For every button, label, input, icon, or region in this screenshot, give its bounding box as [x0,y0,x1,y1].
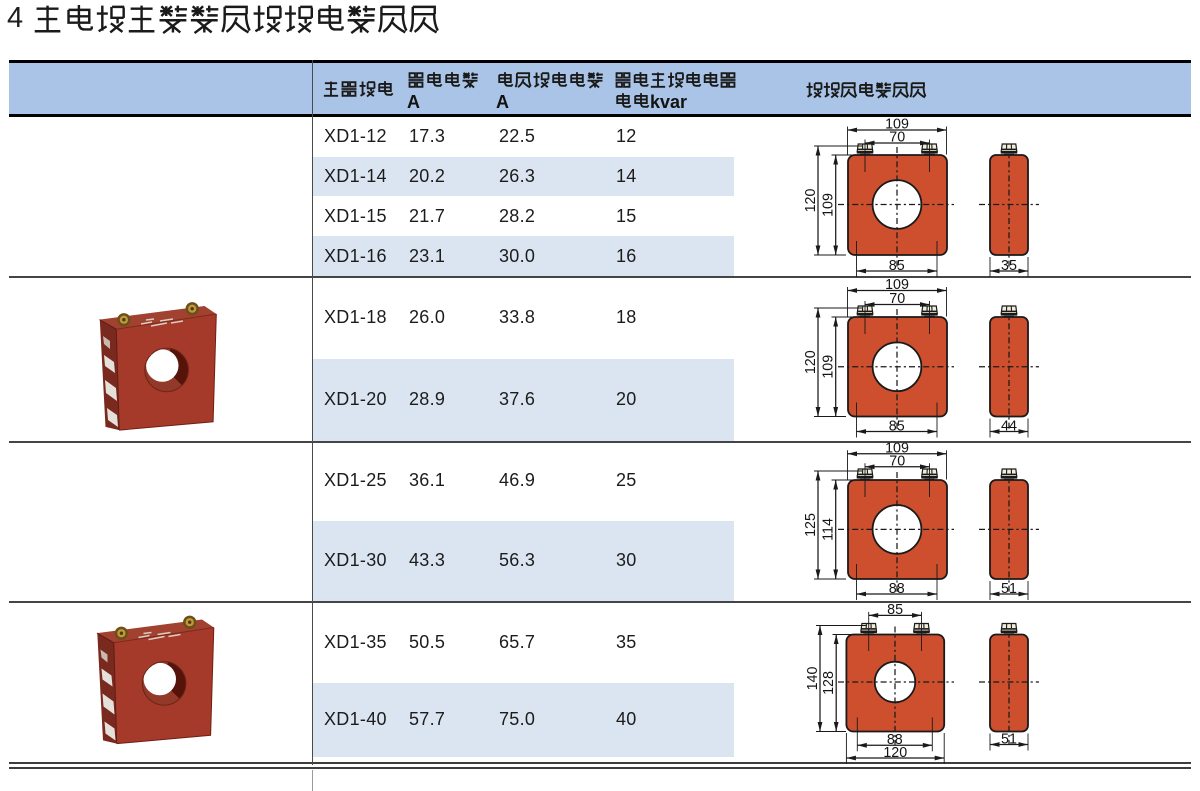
svg-text:70: 70 [889,291,905,307]
svg-text:51: 51 [1001,731,1017,747]
svg-text:85: 85 [889,258,905,274]
svg-text:120: 120 [803,350,819,374]
svg-text:128: 128 [821,671,837,695]
svg-text:70: 70 [889,130,905,146]
svg-text:70: 70 [889,453,905,469]
svg-text:140: 140 [805,667,821,691]
svg-text:88: 88 [889,581,905,597]
svg-text:109: 109 [821,355,837,379]
svg-text:35: 35 [1001,258,1017,274]
svg-text:120: 120 [883,745,907,761]
svg-text:114: 114 [821,518,837,541]
svg-text:109: 109 [821,193,837,217]
svg-text:120: 120 [803,189,819,213]
svg-text:85: 85 [887,602,903,618]
svg-text:44: 44 [1001,418,1017,434]
svg-text:85: 85 [889,418,905,434]
svg-text:51: 51 [1001,581,1017,597]
svg-text:125: 125 [803,513,819,537]
